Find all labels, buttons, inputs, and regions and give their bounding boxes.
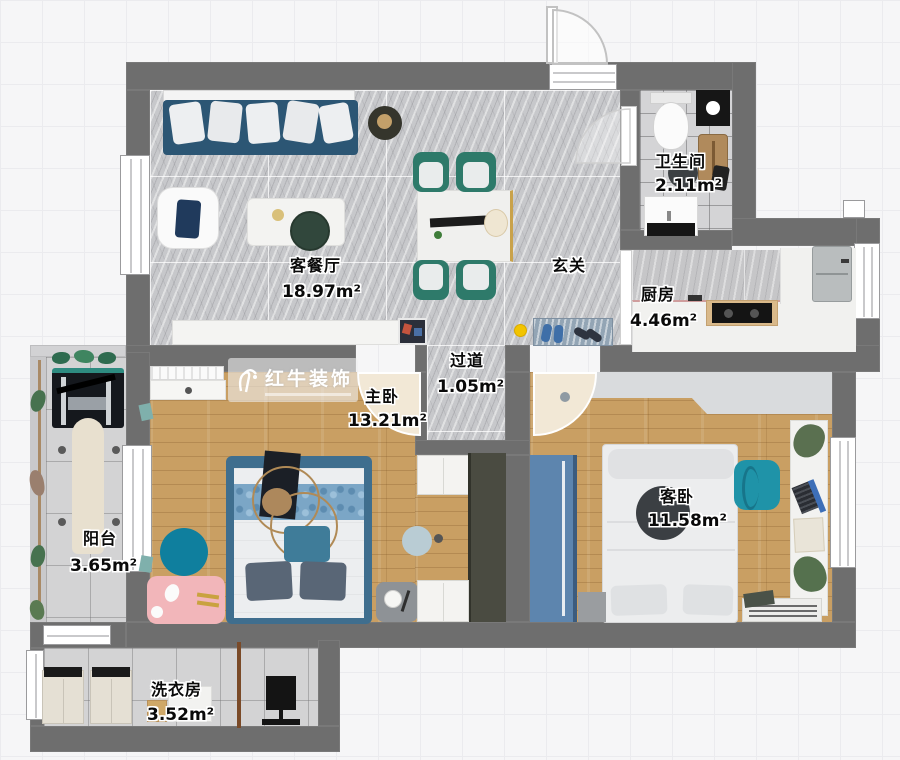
room-label-living: 客餐厅 (290, 252, 341, 276)
bathroom-door-leaf (621, 106, 637, 166)
sofa-pillow (168, 101, 205, 145)
room-label-kitchen: 厨房 (641, 281, 675, 305)
wardrobe-white-bottom (417, 580, 469, 622)
stove (712, 303, 772, 323)
room-area-master: 13.21m² (348, 411, 427, 431)
sofa (163, 100, 358, 155)
wall-laundry-bottom (30, 726, 340, 752)
shower-unit (696, 90, 730, 126)
tv-cabinet (172, 320, 426, 345)
wall-closet-divider (505, 455, 530, 622)
vanity-front (647, 223, 695, 236)
ac-unit (150, 366, 224, 380)
fan-base (262, 719, 300, 725)
column-marker (843, 200, 865, 218)
room-label-balcony: 阳台 (83, 525, 117, 549)
laptop (792, 477, 826, 517)
guest-gray-box (578, 592, 606, 622)
washing-machine (42, 670, 84, 724)
coffee-table-tray (290, 211, 330, 251)
window-master-balcony (122, 445, 152, 572)
kitchen-sink (812, 246, 852, 302)
living-plant (368, 106, 402, 140)
window-living-left (120, 155, 150, 275)
entry-door-threshold (549, 64, 617, 90)
guest-bedroom-gray-strip-2 (690, 396, 832, 414)
room-area-corridor: 1.05m² (437, 377, 504, 397)
bed-tan-cushion (262, 488, 292, 516)
wall-top (126, 62, 756, 90)
watermark-text: 红牛装饰 (265, 364, 353, 391)
floor-anchor (112, 446, 120, 454)
room-label-guest: 客卧 (660, 483, 694, 507)
balcony-plant (98, 352, 116, 364)
room-label-bathroom: 卫生间 (655, 148, 706, 172)
window-guest-right (830, 437, 856, 568)
bed-bolster (608, 449, 734, 479)
master-bed (226, 456, 372, 624)
yellow-marker (514, 324, 527, 337)
master-round-rug (160, 528, 208, 576)
sofa-pillow (207, 100, 243, 143)
dining-chair (413, 260, 449, 300)
wardrobe-white-top (417, 455, 469, 495)
room-label-laundry: 洗衣房 (151, 676, 202, 700)
window-kitchen-right (854, 243, 880, 319)
floor-anchor (58, 446, 66, 454)
brand-watermark: 红牛装饰 (228, 358, 358, 402)
room-label-corridor: 过道 (450, 347, 484, 371)
dining-chair (456, 152, 496, 192)
room-area-laundry: 3.52m² (147, 705, 214, 725)
bed-pillow-teal (284, 526, 330, 562)
room-area-guest: 11.58m² (648, 511, 727, 531)
window-balcony-laundry (43, 625, 111, 645)
sofa-pillow (245, 102, 280, 145)
bed-pillow (610, 584, 667, 616)
room-label-entry: 玄关 (552, 252, 586, 276)
armchair (157, 187, 219, 249)
watermark-subline (265, 393, 351, 396)
wall-stub-corridor-left (415, 345, 427, 372)
dining-table (417, 190, 513, 262)
bed-pillow-gray (299, 561, 346, 601)
coffee-table (247, 198, 345, 246)
side-table-dot (434, 534, 443, 543)
wall-corridor-right (505, 372, 530, 442)
nightstand (376, 582, 418, 622)
balcony-plant (74, 350, 94, 363)
room-label-master: 主卧 (365, 383, 399, 407)
drying-pole (237, 642, 241, 728)
vanity-sink (644, 196, 698, 236)
washing-machine (90, 670, 132, 724)
desk-paper (793, 517, 825, 553)
wall-bathroom-right (732, 62, 756, 232)
bull-logo-icon (234, 365, 260, 395)
wardrobe-olive (468, 453, 506, 622)
slipper-blue (540, 323, 553, 342)
artwork (398, 318, 427, 345)
guest-bedroom-gray-strip (558, 372, 832, 398)
entry-door-leaf (546, 6, 558, 64)
wall-corridor-left (415, 372, 427, 442)
sofa-pillow (282, 100, 320, 145)
fan-head (266, 676, 296, 710)
toilet-bowl (653, 102, 689, 150)
room-area-kitchen: 4.46m² (630, 311, 697, 331)
armchair-cushion (175, 199, 202, 239)
entry-doormat (533, 318, 613, 346)
sofa-pillow (318, 102, 354, 145)
slipper-blue (553, 325, 563, 344)
door-handle-dot (560, 392, 570, 402)
dining-chair (413, 152, 449, 192)
accent-chair (734, 460, 780, 510)
wardrobe-blue (530, 455, 577, 622)
room-area-bathroom: 2.11m² (655, 176, 722, 196)
bed-pillow (682, 584, 733, 616)
counter-item (688, 295, 702, 301)
slipper-dark (585, 327, 604, 343)
room-area-balcony: 3.65m² (70, 556, 137, 576)
floor-plan-canvas: 红牛装饰 客餐厅 18.97m² 玄关 卫生间 2.11m² 厨房 4.46m²… (0, 0, 900, 760)
floor-anchor (58, 518, 66, 526)
room-area-living: 18.97m² (282, 282, 361, 302)
side-table (402, 526, 432, 556)
dining-chair (456, 260, 496, 300)
table-runner (430, 216, 486, 228)
wall-bottom-main (126, 622, 856, 648)
pink-rug (147, 576, 225, 624)
bed-pillow-gray (245, 561, 293, 601)
master-tv-panel (150, 380, 226, 400)
wall-stub-corridor-right (505, 345, 530, 372)
wall-laundry-right (318, 640, 340, 726)
entry-door-swing (553, 10, 607, 64)
